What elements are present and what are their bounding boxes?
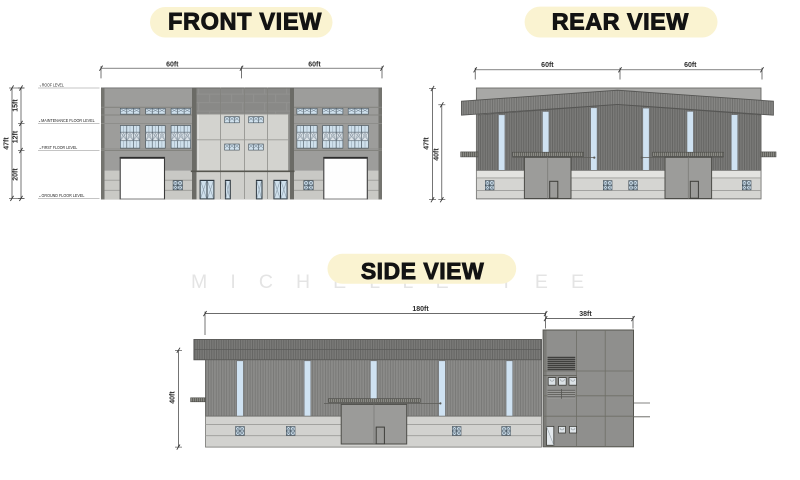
- svg-text:15ft: 15ft: [12, 99, 19, 112]
- svg-text:⌄MAINTENANCE FLOOR LEVEL: ⌄MAINTENANCE FLOOR LEVEL: [38, 118, 95, 123]
- svg-text:60ft: 60ft: [308, 61, 321, 68]
- svg-text:SIDE VIEW: SIDE VIEW: [361, 258, 484, 284]
- svg-text:⌄FIRST FLOOR LEVEL: ⌄FIRST FLOOR LEVEL: [39, 145, 78, 150]
- svg-text:60ft: 60ft: [541, 62, 554, 69]
- svg-text:FRONT VIEW: FRONT VIEW: [168, 10, 322, 36]
- svg-text:180ft: 180ft: [412, 306, 429, 313]
- svg-text:⌄ROOF LEVEL: ⌄ROOF LEVEL: [39, 83, 64, 88]
- svg-text:38ft: 38ft: [579, 311, 592, 318]
- svg-text:60ft: 60ft: [684, 62, 697, 69]
- svg-text:40ft: 40ft: [169, 391, 176, 404]
- svg-text:60ft: 60ft: [166, 61, 179, 68]
- svg-text:47ft: 47ft: [424, 137, 431, 150]
- svg-text:⌄GROUND FLOOR LEVEL: ⌄GROUND FLOOR LEVEL: [38, 193, 84, 198]
- svg-text:REAR VIEW: REAR VIEW: [552, 9, 689, 35]
- svg-text:12ft: 12ft: [12, 130, 19, 143]
- svg-text:20ft: 20ft: [12, 168, 19, 181]
- svg-text:47ft: 47ft: [3, 137, 10, 150]
- svg-text:40ft: 40ft: [433, 148, 440, 161]
